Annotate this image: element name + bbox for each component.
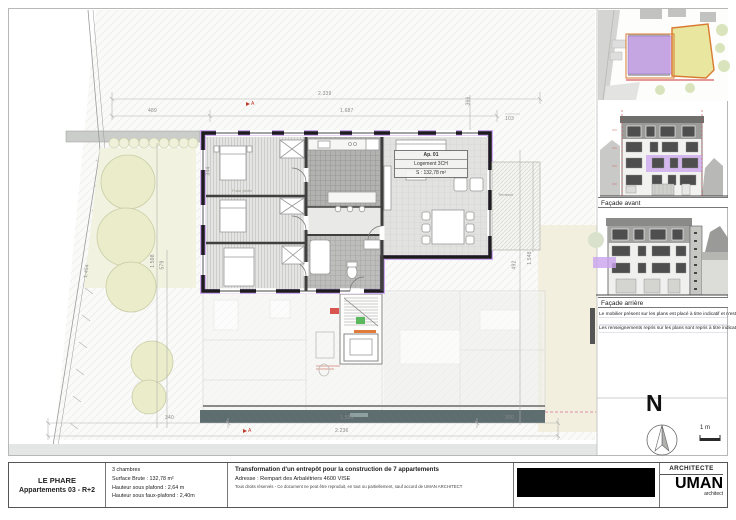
facade-arriere-drawing xyxy=(588,218,728,295)
dim-right-1: 492 xyxy=(511,261,517,270)
north-label: N xyxy=(646,390,663,417)
marker-letter: A xyxy=(248,428,251,434)
facade-arriere-highlight xyxy=(593,257,616,268)
dim-right-top: 103 xyxy=(505,116,514,122)
dim-bottom-2: 1.596 xyxy=(340,415,354,421)
section-marker-top: A xyxy=(246,101,254,107)
titleblock-specs-cell: 3 chambres Surface Brute : 132,78 m² Hau… xyxy=(105,463,227,507)
redacted-box xyxy=(517,468,655,497)
copyright-note: Tous droits réservés - Ce document ne pe… xyxy=(235,484,485,490)
titleblock-project-cell: LE PHARE Appartements 03 - R+2 xyxy=(9,463,105,507)
drawing-sheet: 2.339 489 1.687 366 103 492 1.548 1.598 … xyxy=(0,0,736,520)
architect-logo: UMAN xyxy=(675,476,723,492)
section-marker-bottom: A xyxy=(243,428,251,434)
dim-bottom-total: 2.236 xyxy=(335,428,349,434)
dim-bottom-1: 340 xyxy=(165,415,174,421)
facade-avant-drawing xyxy=(600,110,728,196)
apartment-label: Ap. 01 Logement 3CH S : 132,78 m² xyxy=(394,150,468,178)
scale-bar-icon xyxy=(700,435,720,441)
spec-surface: Surface Brute : 132,78 m² xyxy=(112,475,227,484)
marker-letter: A xyxy=(251,101,254,107)
scale-label: 1 m xyxy=(700,425,710,431)
apartment-type: Logement 3CH xyxy=(395,159,467,168)
project-address: Adresse : Rempart des Arbalétriers 4600 … xyxy=(235,476,513,482)
marker-arrow-icon xyxy=(243,429,247,433)
dim-top-left: 489 xyxy=(148,108,157,114)
terrace-label: Terrasse xyxy=(498,192,513,197)
site-highlight-building xyxy=(628,36,672,74)
project-description: Transformation d'un entrepôt pour la con… xyxy=(235,466,513,473)
legal-notes: Le mobilier présent sur les plans est pl… xyxy=(599,311,727,339)
dim-right-2: 1.548 xyxy=(527,251,533,265)
dim-garden: 344 xyxy=(205,167,211,176)
site-garden-parcel xyxy=(672,24,714,78)
dim-top-mid: 1.687 xyxy=(340,108,354,114)
architect-heading: ARCHITECTE xyxy=(669,465,714,472)
apartment-id: Ap. 01 xyxy=(395,151,467,159)
dim-bottom-3: 300 xyxy=(505,415,514,421)
project-name: LE PHARE xyxy=(38,476,76,485)
right-panel xyxy=(588,8,730,455)
dim-left-2: 579 xyxy=(159,261,165,270)
titleblock-description-cell: Transformation d'un entrepôt pour la con… xyxy=(227,463,513,507)
marker-arrow-icon xyxy=(246,102,250,106)
plan-drawing xyxy=(0,0,736,520)
facade-arriere-label: Façade arrière xyxy=(598,297,728,308)
site-plan-thumbnail xyxy=(598,9,730,101)
apartment-surface: S : 132,78 m² xyxy=(395,168,467,177)
unit-name: Appartements 03 - R+2 xyxy=(19,487,95,494)
dim-left-1: 1.598 xyxy=(150,254,156,268)
architect-logo-sub: architect xyxy=(704,491,723,497)
dim-top-right: 366 xyxy=(465,97,471,106)
notes-paragraph-1: Le mobilier présent sur les plans est pl… xyxy=(599,311,727,318)
spec-ceiling: Hauteur sous plafond : 2,64 m xyxy=(112,484,227,493)
north-arrow-icon xyxy=(647,425,677,455)
spec-false-ceiling: Hauteur sous faux-plafond : 2,40m xyxy=(112,492,227,501)
hedge-icon xyxy=(109,138,198,148)
dim-top-total: 2.339 xyxy=(318,91,332,97)
neighbour-parcel xyxy=(538,225,597,432)
spec-rooms: 3 chambres xyxy=(112,466,227,475)
titleblock-stamp-cell xyxy=(513,463,659,507)
facade-avant-label: Façade avant xyxy=(598,197,728,208)
garden-label: Futur jardin xyxy=(232,188,252,193)
notes-paragraph-2: Les renseignements repris sur les plans … xyxy=(599,325,727,332)
titleblock-architect-cell: ARCHITECTE UMAN architect xyxy=(659,463,727,507)
title-block: LE PHARE Appartements 03 - R+2 3 chambre… xyxy=(8,462,728,508)
